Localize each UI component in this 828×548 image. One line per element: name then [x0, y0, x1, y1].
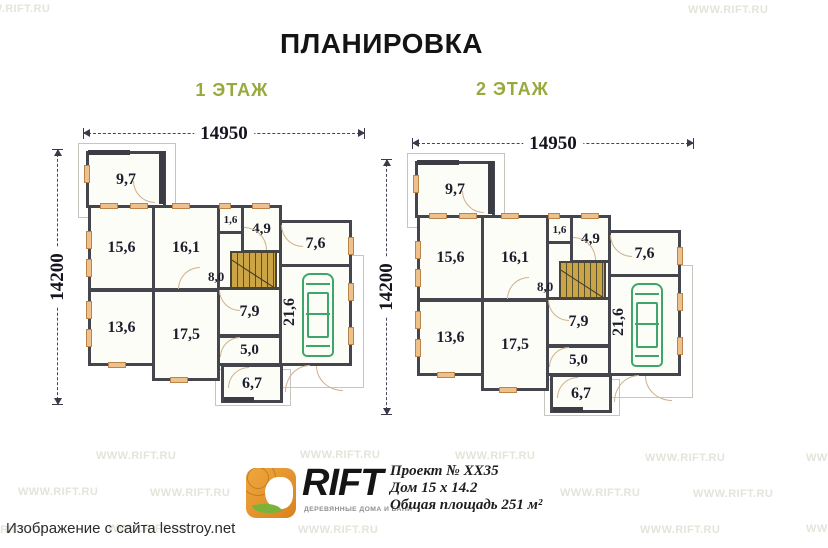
window-marker	[548, 213, 560, 219]
source-caption: Изображение с сайта lesstroy.net	[6, 520, 235, 537]
room-area-label: 13,6	[437, 329, 465, 347]
window-marker	[170, 377, 188, 383]
wall-dark-segment	[224, 397, 254, 402]
window-marker	[252, 203, 270, 209]
window-marker	[172, 203, 190, 209]
window-marker	[348, 327, 354, 345]
floor-label: 1 ЭТАЖ	[195, 80, 268, 101]
dimension-arrow	[83, 129, 90, 137]
window-marker	[499, 387, 517, 393]
watermark: WWW.RIFT.RU	[455, 450, 535, 462]
window-marker	[130, 203, 148, 209]
project-area: Общая площадь 251 м²	[390, 497, 542, 514]
window-marker	[86, 231, 92, 249]
window-marker	[86, 259, 92, 277]
wall-dark-segment	[88, 150, 130, 155]
staircase-diagonal	[230, 257, 277, 289]
window-marker	[437, 372, 455, 378]
window-marker	[677, 247, 683, 265]
room-area-label: 16,1	[172, 239, 200, 257]
room-area-label: 5,0	[240, 342, 259, 359]
watermark: WWW.RIFT.RU	[688, 4, 768, 16]
wall-dark-segment	[159, 151, 165, 204]
page-title: ПЛАНИРОВКА	[280, 28, 483, 60]
window-marker	[86, 329, 92, 347]
watermark: WWW.RIFT.RU	[150, 487, 230, 499]
floor-plan-1: 1 ЭТАЖ 14950 14200 9,7 15,6 16,1 1,6 4,9…	[78, 143, 363, 405]
window-marker	[100, 203, 118, 209]
car-roof	[636, 302, 658, 348]
room-area-label: 8,0	[208, 269, 224, 285]
room-area-label: 1,6	[553, 224, 567, 236]
room-1-6: 1,6	[217, 205, 244, 234]
watermark: WWW.RIFT.RU	[0, 3, 50, 15]
floor-plan-2: 2 ЭТАЖ 14950 14200 9,7 15,6 16,1 1,6 4,9…	[407, 153, 692, 415]
watermark: WWW.RIFT.RU	[18, 486, 98, 498]
dimension-arrow	[412, 139, 419, 147]
window-marker	[348, 237, 354, 255]
dimension-width-label: 14950	[523, 133, 583, 155]
project-info: Проект № ХХ35 Дом 15 х 14.2 Общая площад…	[390, 463, 542, 514]
watermark: WWW.RIFT.RU	[300, 449, 380, 461]
dimension-height-label: 14200	[47, 247, 69, 307]
car-roof	[307, 292, 329, 338]
watermark: WWW.RIFT.RU	[806, 452, 828, 464]
car-mid-line	[306, 313, 330, 315]
staircase	[559, 261, 606, 299]
dimension-height: 14200	[49, 149, 65, 405]
room-area-label: 15,6	[108, 239, 136, 257]
page: ПЛАНИРОВКА WWW.RIFT.RU WWW.RIFT.RU WWW.R…	[0, 0, 828, 548]
dimension-width-label: 14950	[194, 123, 254, 145]
room-13-6: 13,6	[417, 299, 484, 376]
logo-icon	[246, 468, 296, 518]
window-marker	[677, 293, 683, 311]
dimension-arrow	[54, 398, 62, 405]
window-marker	[415, 311, 421, 329]
dimension-height: 14200	[378, 159, 394, 415]
car-hood-line	[635, 293, 659, 295]
window-marker	[86, 301, 92, 319]
room-area-label: 16,1	[501, 249, 529, 267]
wall-dark-segment	[553, 407, 583, 412]
dimension-arrow	[54, 149, 62, 156]
window-marker	[581, 213, 599, 219]
car-rear-line	[306, 345, 330, 347]
dimension-arrow	[687, 139, 694, 147]
wall-dark-segment	[417, 160, 459, 165]
window-marker	[429, 213, 447, 219]
project-size: Дом 15 х 14.2	[390, 480, 542, 497]
dimension-width: 14950	[412, 135, 694, 152]
dimension-height-label: 14200	[376, 257, 398, 317]
window-marker	[415, 241, 421, 259]
watermark: WWW.RIFT.RU	[96, 450, 176, 462]
dimension-arrow	[383, 408, 391, 415]
project-number: Проект № ХХ35	[390, 463, 542, 480]
watermark: WWW.RIFT.RU	[298, 524, 378, 536]
watermark: WWW.RIFT.RU	[806, 523, 828, 535]
room-area-label: 15,6	[437, 249, 465, 267]
floor-label: 2 ЭТАЖ	[476, 79, 549, 100]
window-marker	[219, 203, 231, 209]
logo-text: RIFT	[302, 462, 382, 505]
watermark: WWW.RIFT.RU	[640, 524, 720, 536]
car-mid-line	[635, 323, 659, 325]
window-marker	[415, 269, 421, 287]
staircase	[230, 251, 277, 289]
room-area-label: 7,6	[635, 245, 655, 263]
room-area-label: 8,0	[537, 279, 553, 295]
room-area-label: 7,9	[569, 313, 589, 331]
watermark: WWW.RIFT.RU	[645, 452, 725, 464]
staircase-diagonal	[559, 267, 606, 299]
dimension-width: 14950	[83, 125, 365, 142]
room-area-label: 7,9	[240, 303, 260, 321]
window-marker	[459, 213, 477, 219]
watermark: WWW.RIFT.RU	[560, 487, 640, 499]
car-hood-line	[306, 283, 330, 285]
dimension-arrow	[383, 159, 391, 166]
car-icon	[631, 283, 663, 367]
room-15-6: 15,6	[88, 205, 155, 291]
room-area-label: 21,6	[281, 280, 299, 344]
room-area-label: 17,5	[172, 326, 200, 344]
dimension-arrow	[358, 129, 365, 137]
car-rear-line	[635, 355, 659, 357]
window-marker	[348, 283, 354, 301]
room-area-label: 7,6	[306, 235, 326, 253]
room-area-label: 13,6	[108, 319, 136, 337]
window-marker	[501, 213, 519, 219]
room-17-5: 17,5	[481, 299, 549, 391]
wall-dark-segment	[488, 161, 494, 214]
watermark: WWW.RIFT.RU	[693, 488, 773, 500]
car-icon	[302, 273, 334, 357]
room-area-label: 21,6	[610, 290, 628, 354]
room-1-6: 1,6	[546, 215, 573, 244]
window-marker	[415, 339, 421, 357]
window-marker	[413, 175, 419, 193]
room-area-label: 1,6	[224, 214, 238, 226]
room-15-6: 15,6	[417, 215, 484, 301]
window-marker	[677, 337, 683, 355]
window-marker	[108, 362, 126, 368]
room-area-label: 17,5	[501, 336, 529, 354]
window-marker	[84, 165, 90, 183]
room-area-label: 5,0	[569, 352, 588, 369]
room-13-6: 13,6	[88, 289, 155, 366]
room-17-5: 17,5	[152, 289, 220, 381]
